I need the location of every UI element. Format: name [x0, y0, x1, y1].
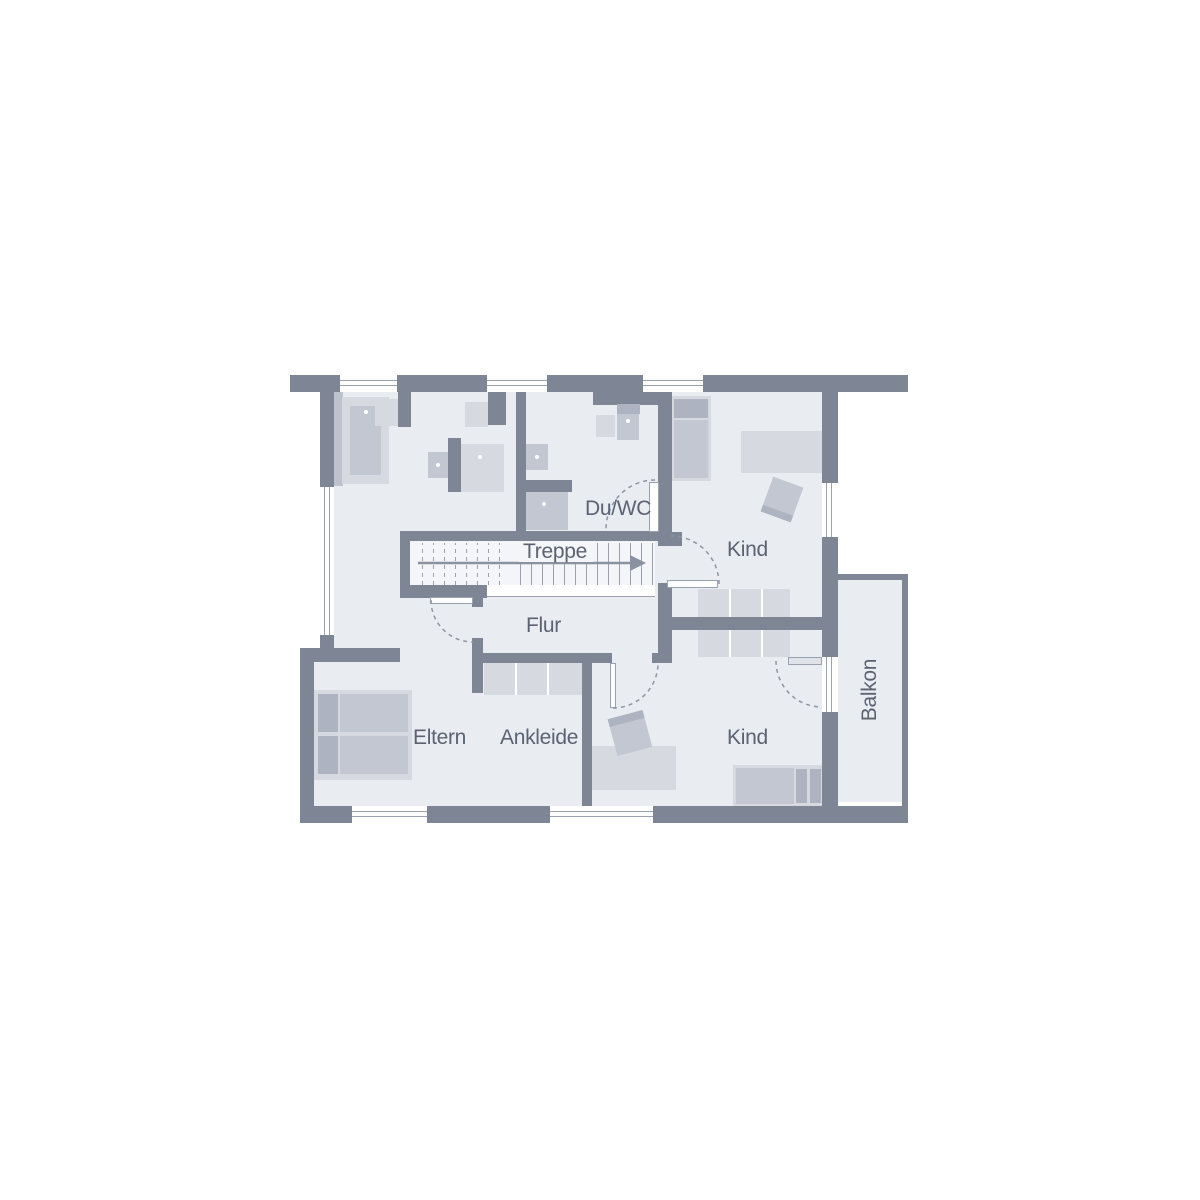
room-label-kind-top: Kind — [727, 538, 768, 562]
door-swing-arc — [671, 536, 719, 584]
room-label-ankleide: Ankleide — [500, 726, 578, 750]
room-label-flur: Flur — [526, 614, 561, 638]
door-swing-arc — [776, 661, 822, 707]
room-label-kind-bottom: Kind — [727, 726, 768, 750]
door-swing-arcs — [290, 370, 910, 830]
room-label-balkon: Balkon — [858, 658, 882, 722]
room-label-duwc: Du/WC — [585, 497, 651, 521]
door-swing-arc — [613, 663, 658, 708]
room-label-eltern: Eltern — [413, 726, 466, 750]
room-label-treppe: Treppe — [523, 540, 587, 564]
door-swing-arc — [431, 600, 473, 642]
floor-plan: Du/WC Treppe Kind Flur Eltern Ankleide K… — [0, 0, 1200, 1200]
